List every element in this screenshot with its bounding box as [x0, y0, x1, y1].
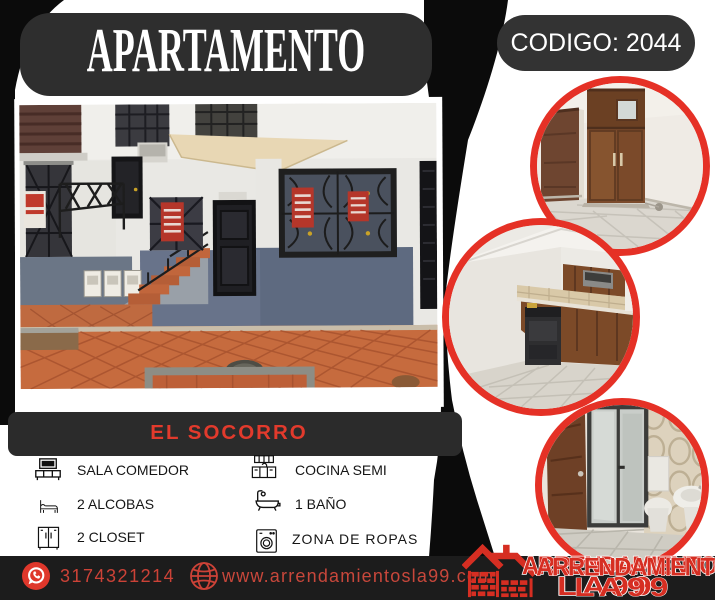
- svg-text:LA99: LA99: [574, 574, 672, 598]
